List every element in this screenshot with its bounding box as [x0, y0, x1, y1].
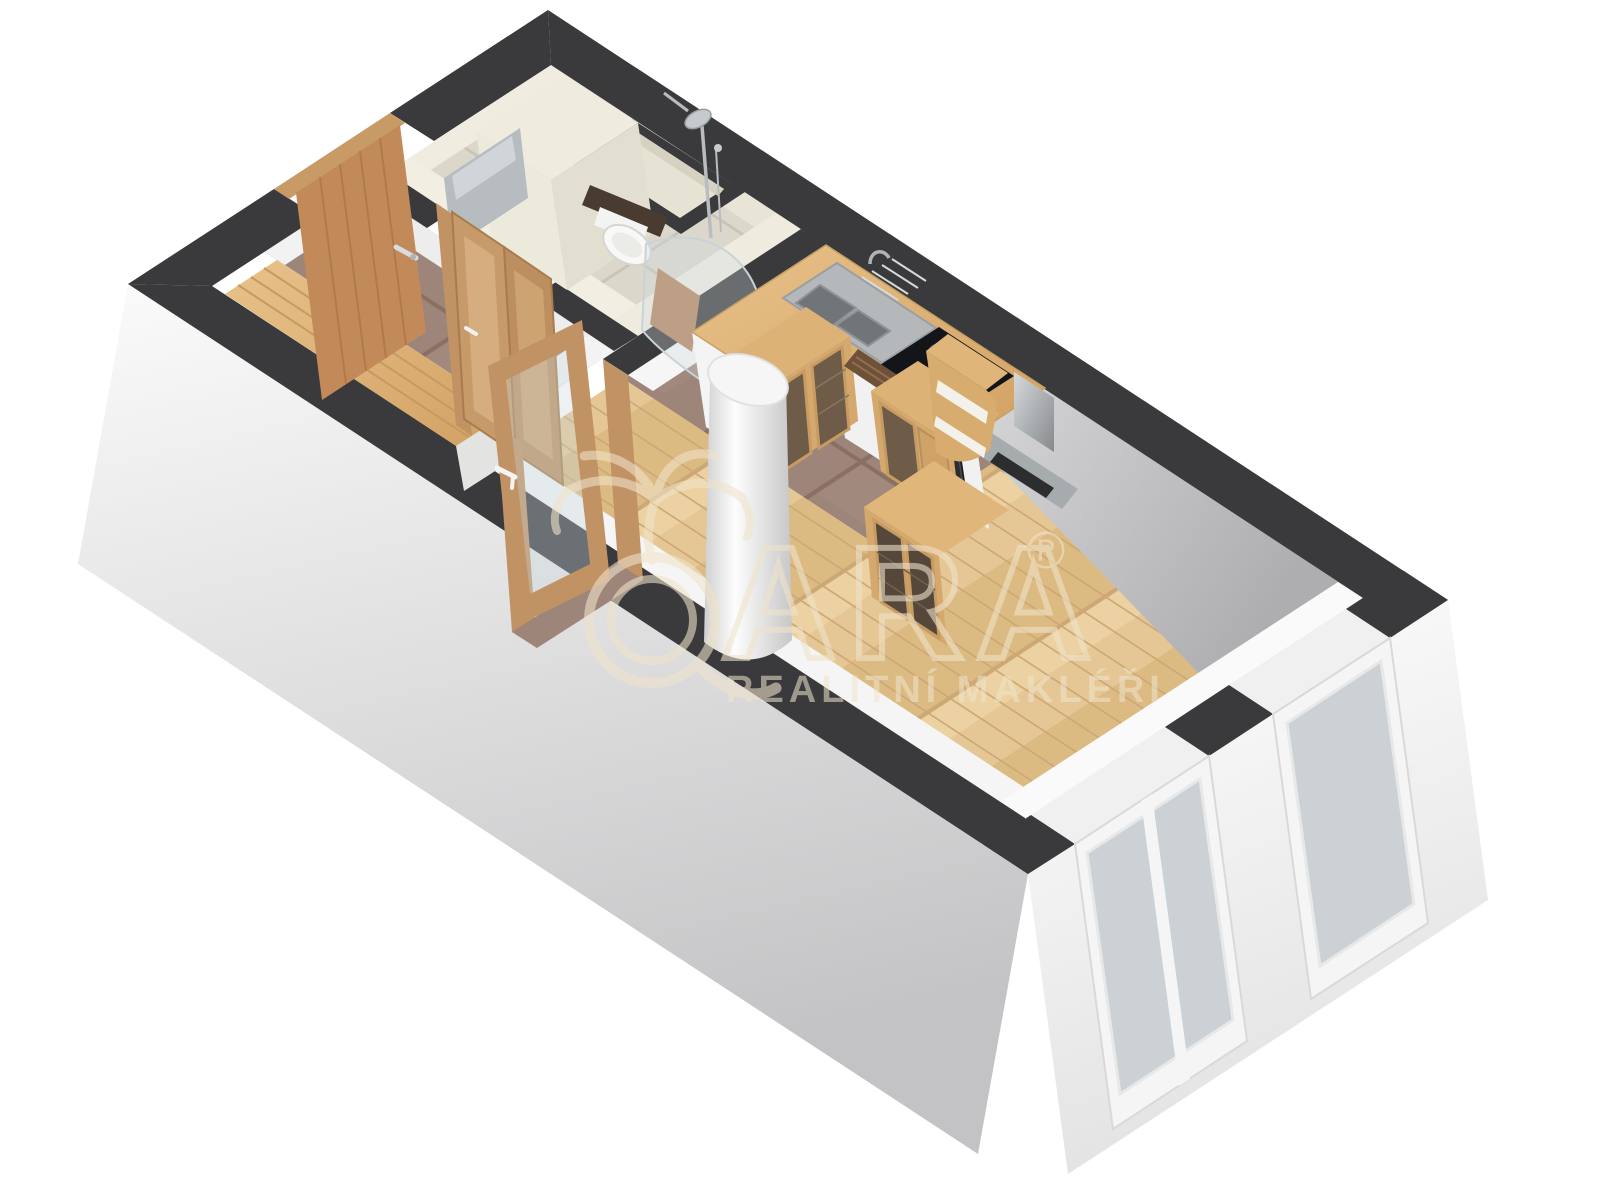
- floor-plan-svg: ARA ® REALITNÍ MAKLÉŘI: [0, 0, 1600, 1200]
- tagline-text: REALITNÍ MAKLÉŘI: [726, 667, 1165, 711]
- registered-mark: ®: [1027, 522, 1065, 580]
- floor-plan-image: ARA ® REALITNÍ MAKLÉŘI: [0, 0, 1600, 1200]
- upper-left-glass-1: [812, 347, 849, 448]
- shower-handset-icon: [714, 144, 722, 152]
